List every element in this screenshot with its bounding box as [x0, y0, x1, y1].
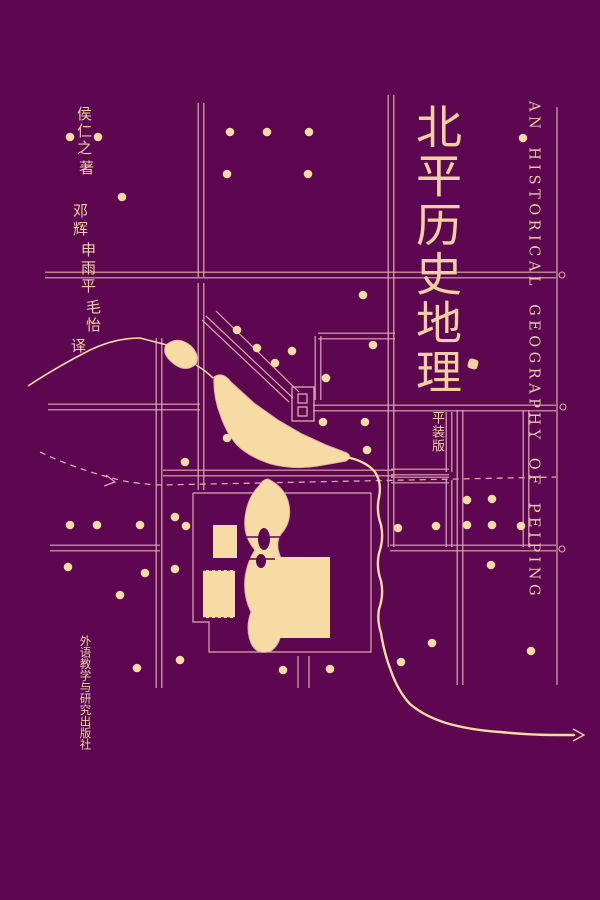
publisher-name: 外语教学与研究出版社: [79, 635, 91, 750]
book-cover-background: 北平历史地理 平装版 侯仁之 著 邓辉 申雨平 毛怡 译 外语教学与研究出版社 …: [0, 0, 600, 900]
translator-name-2: 申雨平: [80, 242, 95, 296]
author-name: 侯仁之: [76, 106, 91, 157]
translator-name-1: 邓辉: [72, 203, 87, 239]
book-title: 北平历史地理: [413, 103, 459, 397]
translator-name-3: 毛怡: [85, 299, 100, 335]
english-title: AN HISTORICAL GEOGRAPHY OF PEIPING: [526, 101, 541, 600]
author-role-label: 著: [78, 160, 93, 177]
edition-label: 平装版: [430, 411, 443, 453]
translator-role-label: 译: [70, 338, 85, 355]
